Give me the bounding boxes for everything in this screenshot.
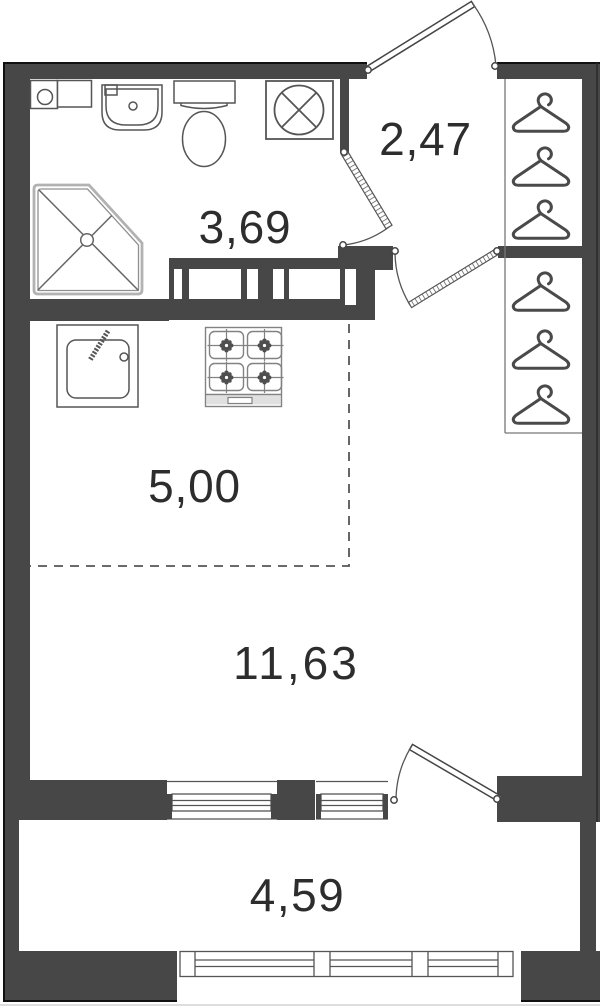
svg-text:4,59: 4,59 (250, 869, 346, 921)
svg-text:11,63: 11,63 (233, 637, 360, 689)
svg-text:3,69: 3,69 (199, 201, 292, 253)
svg-text:2,47: 2,47 (379, 113, 472, 165)
svg-text:5,00: 5,00 (148, 460, 241, 512)
